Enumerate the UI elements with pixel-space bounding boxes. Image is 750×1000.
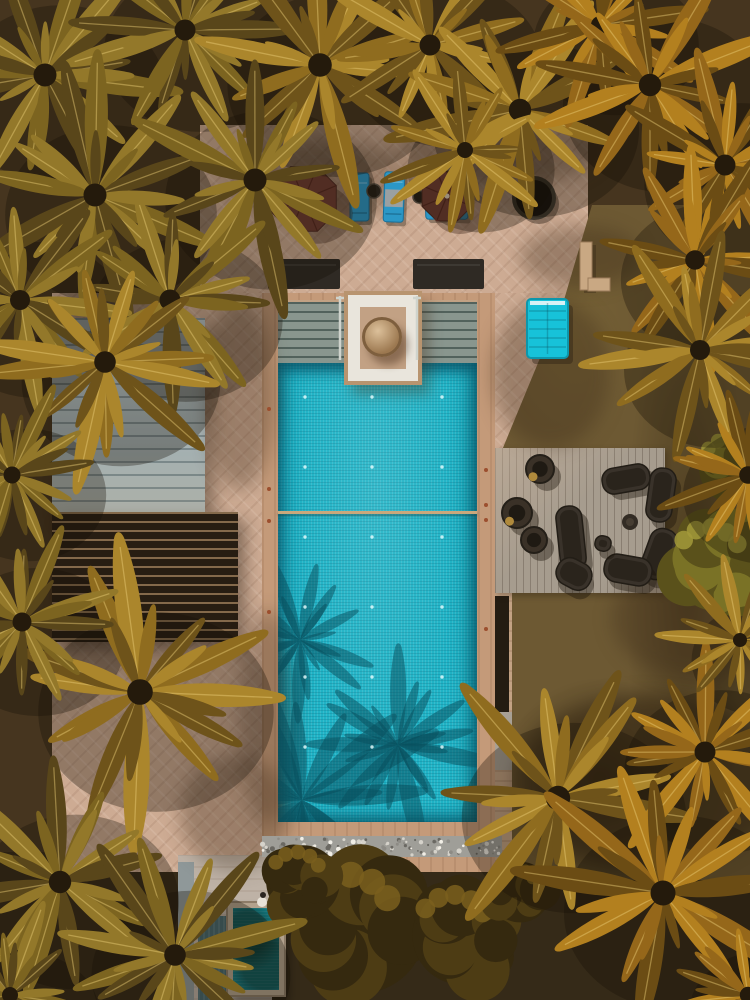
aerial-pool-courtyard-photo <box>0 0 750 1000</box>
deck-coffee-table <box>622 514 638 530</box>
person-on-chair <box>257 892 267 907</box>
scene-overlay <box>0 0 750 1000</box>
outdoor-sofa <box>548 553 602 604</box>
deck-mat <box>413 259 484 289</box>
coping-drains <box>267 407 488 631</box>
stone-bench <box>580 242 610 293</box>
wicker-pod-chair <box>521 527 554 561</box>
pool-lights <box>303 395 443 748</box>
pool-handrails <box>336 296 421 360</box>
cyan-lounger <box>527 299 573 364</box>
wicker-pod-chair <box>526 455 561 491</box>
